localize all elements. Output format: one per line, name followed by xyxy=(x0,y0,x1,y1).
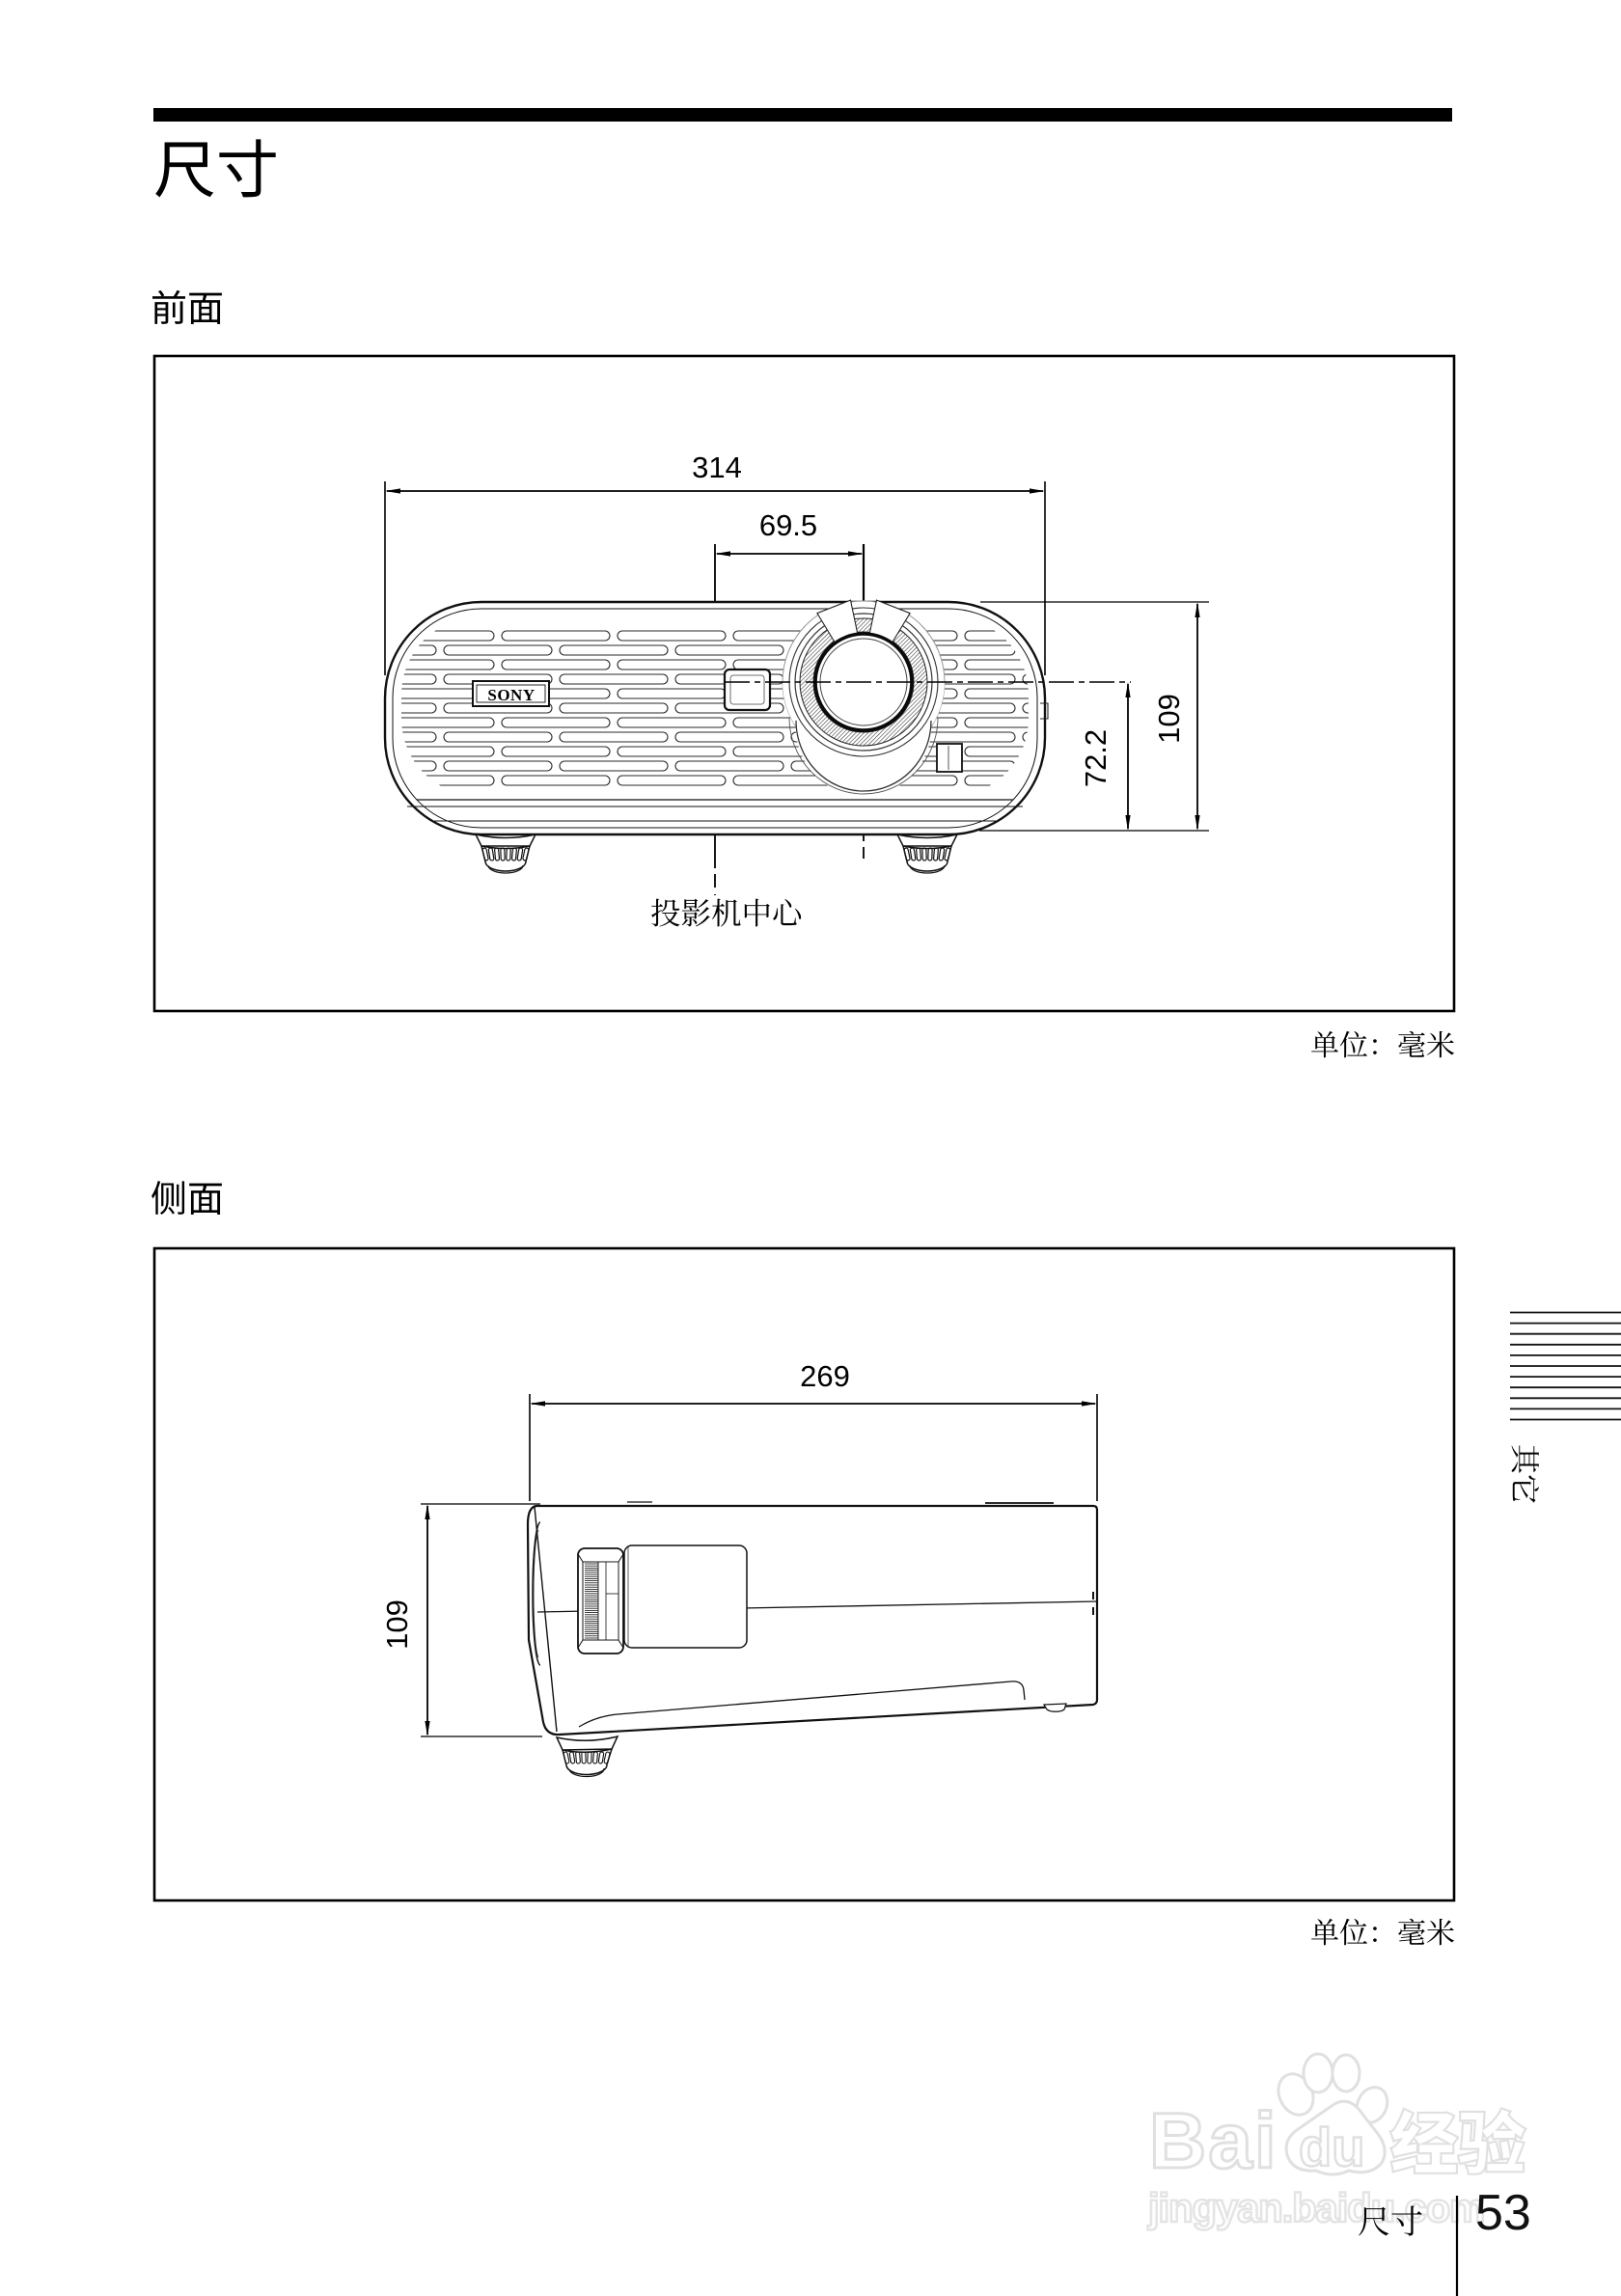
svg-text:53: 53 xyxy=(1475,2185,1531,2241)
svg-text:du: du xyxy=(1299,2117,1364,2177)
svg-text:SONY: SONY xyxy=(487,686,535,704)
svg-text:314: 314 xyxy=(692,451,742,484)
svg-text:jingyan.baidu.com: jingyan.baidu.com xyxy=(1147,2185,1484,2230)
svg-text:269: 269 xyxy=(800,1359,850,1393)
svg-text:69.5: 69.5 xyxy=(759,508,817,542)
svg-text:109: 109 xyxy=(380,1599,414,1650)
svg-text:Bai: Bai xyxy=(1149,2097,1278,2185)
svg-text:109: 109 xyxy=(1152,694,1186,744)
svg-text:72.2: 72.2 xyxy=(1079,729,1113,787)
